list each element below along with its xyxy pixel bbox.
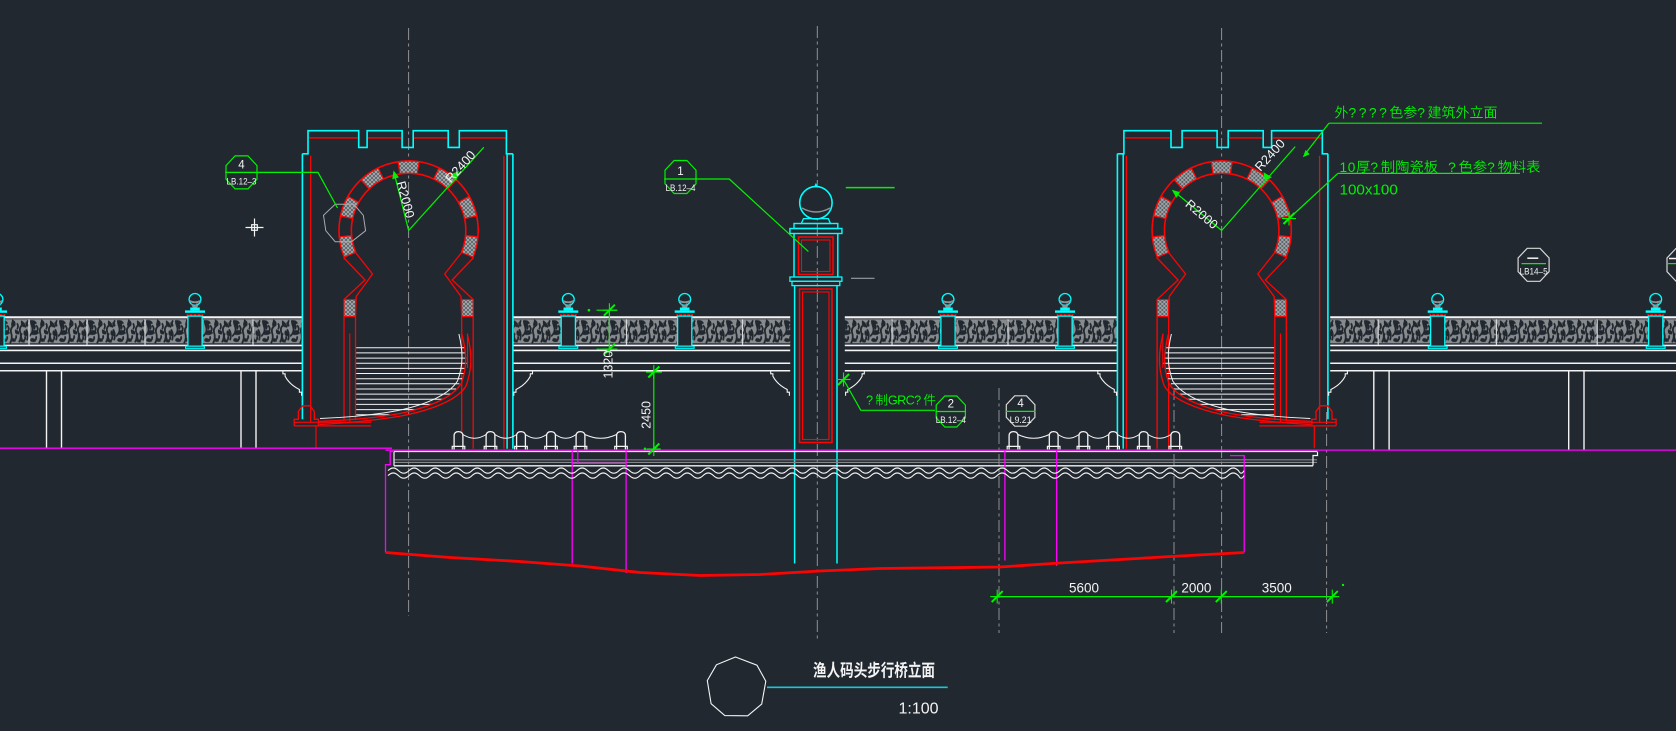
svg-text:5600: 5600 xyxy=(1069,580,1099,595)
svg-text:3500: 3500 xyxy=(1262,580,1292,595)
svg-text:?: ? xyxy=(1379,105,1387,121)
svg-text:?: ? xyxy=(1349,105,1357,121)
svg-text:2450: 2450 xyxy=(640,401,654,429)
svg-text:?: ? xyxy=(1359,105,1367,121)
svg-text:2: 2 xyxy=(948,399,954,411)
svg-text:LB14–5: LB14–5 xyxy=(1520,266,1548,276)
svg-text:100x100: 100x100 xyxy=(1340,182,1398,199)
svg-text:L9.21: L9.21 xyxy=(1010,415,1032,425)
svg-text:?: ? xyxy=(1448,160,1456,175)
svg-text:?: ? xyxy=(1417,105,1425,121)
svg-text:4: 4 xyxy=(238,159,245,171)
svg-text:?: ? xyxy=(914,394,921,408)
svg-text:?: ? xyxy=(1369,105,1377,121)
svg-text:2000: 2000 xyxy=(1181,580,1211,595)
svg-text:?: ? xyxy=(866,394,873,408)
svg-text:1: 1 xyxy=(1340,160,1348,175)
svg-text:LB.12–4: LB.12–4 xyxy=(936,415,966,425)
svg-text:1320: 1320 xyxy=(601,351,615,379)
svg-text:4: 4 xyxy=(1017,398,1024,410)
svg-text:?: ? xyxy=(1370,160,1378,175)
svg-text:LB.12–3: LB.12–3 xyxy=(227,176,257,186)
svg-text:LB.12–4: LB.12–4 xyxy=(666,183,696,193)
svg-text:0: 0 xyxy=(1348,160,1356,175)
svg-text:1:100: 1:100 xyxy=(899,701,939,718)
svg-text:1: 1 xyxy=(677,166,683,178)
svg-text:?: ? xyxy=(1487,160,1495,175)
